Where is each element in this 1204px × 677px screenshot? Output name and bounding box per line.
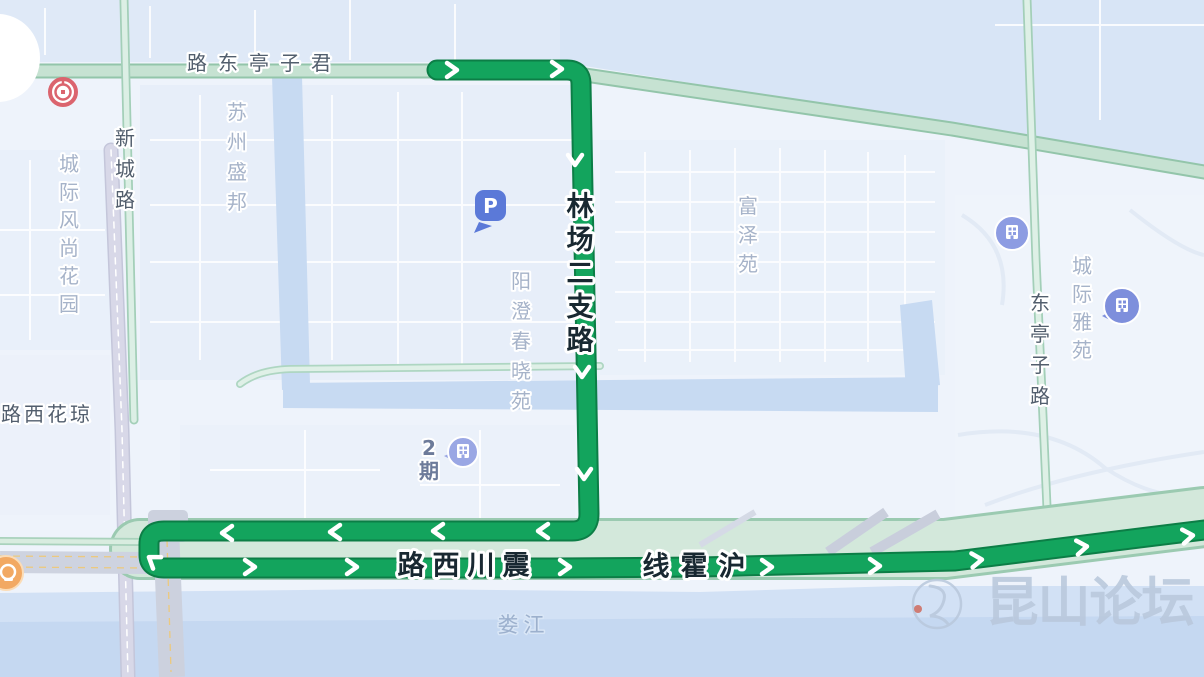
- bridge-south: [166, 528, 172, 677]
- map-canvas[interactable]: P 林场二支路震川西路沪霍线君子亭东路新城路东亭子路琼花西路苏州盛邦城际风尚花园…: [0, 0, 1204, 677]
- map-stage: P 林场二支路震川西路沪霍线君子亭东路新城路东亭子路琼花西路苏州盛邦城际风尚花园…: [0, 0, 1204, 677]
- residential-pin-1[interactable]: [995, 216, 1029, 250]
- bank-icon[interactable]: [50, 79, 76, 105]
- building-icon: [1006, 225, 1018, 239]
- building-icon: [457, 444, 469, 458]
- building-icon: [1116, 298, 1128, 312]
- water-channel-horizontal: [283, 377, 938, 412]
- parking-pin-letter: P: [483, 194, 498, 218]
